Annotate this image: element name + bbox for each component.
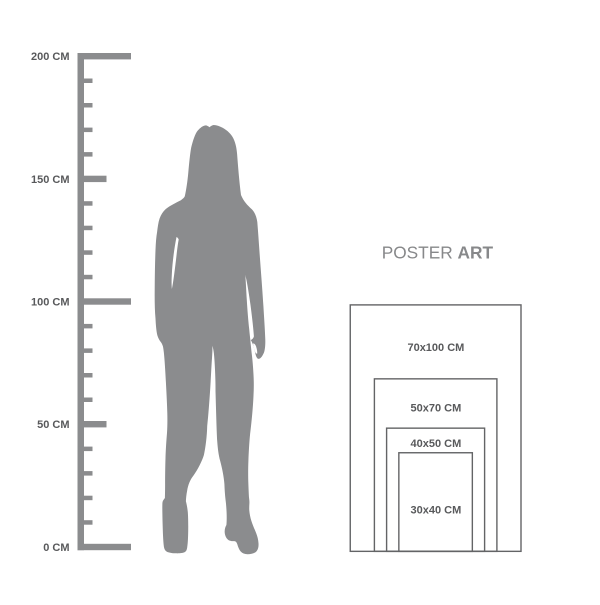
svg-text:50x70 CM: 50x70 CM — [411, 403, 462, 415]
svg-text:50 CM: 50 CM — [37, 419, 69, 431]
svg-text:100 CM: 100 CM — [31, 297, 70, 309]
svg-text:30x40 CM: 30x40 CM — [411, 504, 462, 516]
svg-text:200 CM: 200 CM — [31, 51, 70, 63]
svg-text:POSTER ART: POSTER ART — [382, 243, 494, 263]
svg-text:150 CM: 150 CM — [31, 174, 70, 186]
svg-text:0 CM: 0 CM — [43, 542, 69, 554]
svg-text:40x50 CM: 40x50 CM — [411, 438, 462, 450]
svg-text:70x100 CM: 70x100 CM — [407, 342, 464, 354]
